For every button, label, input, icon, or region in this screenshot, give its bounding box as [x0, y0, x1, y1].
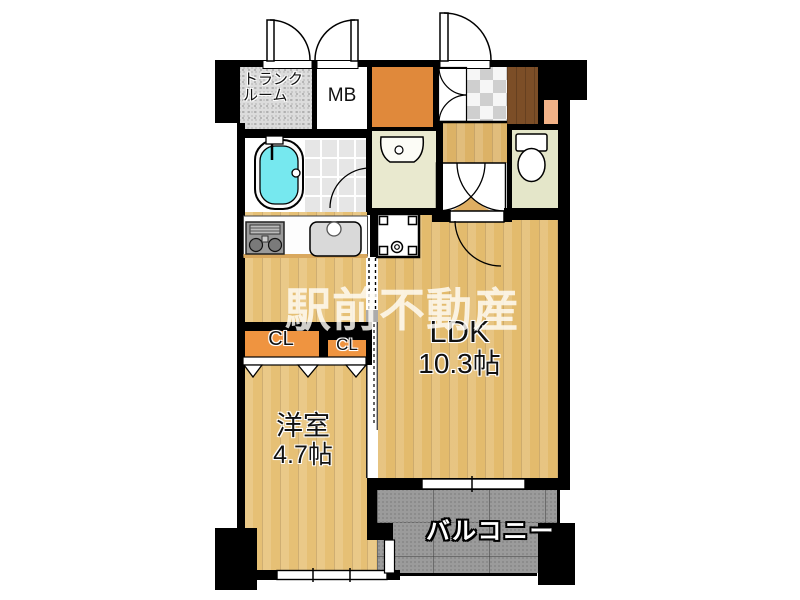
- entrance-door-icon: [440, 13, 491, 61]
- floor-plan: トランク ルーム MB CL CL LDK 10.3帖 洋室 4.7帖 バルコニ…: [0, 0, 800, 600]
- western-room-window-icon: [277, 568, 387, 582]
- balcony-label: バルコニー: [426, 519, 556, 545]
- balcony-partition: [385, 540, 395, 573]
- ldk-door-icon: [450, 211, 504, 266]
- trunk-room-label: トランク ルーム: [243, 72, 303, 104]
- meter-box-label: MB: [317, 86, 367, 107]
- shoe-closet-doors-icon: [439, 67, 468, 123]
- western-room-size-label: 4.7帖: [243, 442, 363, 469]
- ldk-window-icon: [422, 476, 525, 492]
- western-room-name-label: 洋室: [243, 412, 363, 441]
- trunk-door-icon: [267, 20, 310, 61]
- bathroom-door-icon: [330, 168, 370, 208]
- washbasin-icon: [381, 137, 424, 162]
- bathtub-icon: [255, 136, 303, 209]
- kitchen-sink-icon: [310, 222, 361, 256]
- mb-door-icon: [315, 20, 358, 61]
- folding-door-icon: [243, 357, 366, 377]
- hall-double-door-icon: [437, 163, 506, 212]
- washer-pan-icon: [377, 214, 419, 257]
- gas-stove-icon: [246, 222, 284, 254]
- toilet-icon: [516, 134, 547, 182]
- watermark-text: 駅前不動産: [285, 274, 520, 340]
- ldk-size-label: 10.3帖: [397, 349, 522, 379]
